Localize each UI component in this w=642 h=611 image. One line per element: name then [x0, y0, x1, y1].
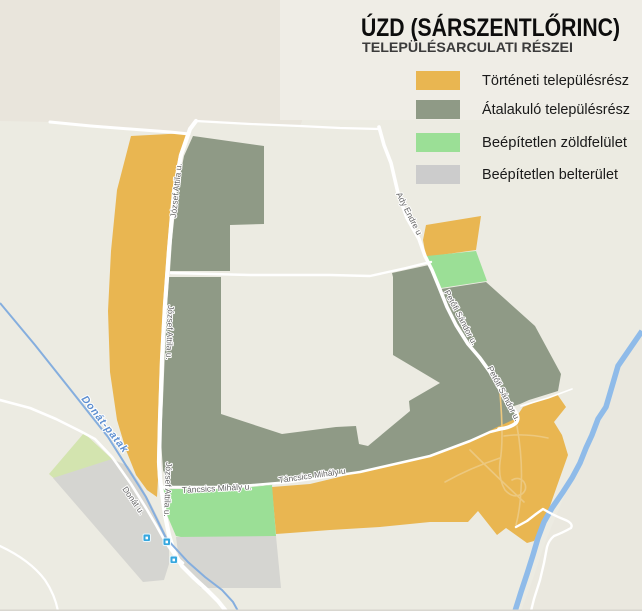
- svg-text:József Attila u.: József Attila u.: [162, 462, 174, 517]
- svg-text:Átalakuló településrész: Átalakuló településrész: [482, 101, 630, 118]
- svg-text:József Attila u.: József Attila u.: [164, 305, 176, 360]
- svg-text:TELEPÜLÉSARCULATI RÉSZEI: TELEPÜLÉSARCULATI RÉSZEI: [362, 39, 573, 55]
- svg-text:Beépítetlen zöldfelület: Beépítetlen zöldfelület: [482, 134, 628, 151]
- svg-text:ÚZD (SÁRSZENTLŐRINC): ÚZD (SÁRSZENTLŐRINC): [361, 12, 620, 42]
- svg-text:Beépítetlen belterület: Beépítetlen belterület: [482, 166, 619, 183]
- svg-text:Történeti településrész: Történeti településrész: [482, 72, 629, 89]
